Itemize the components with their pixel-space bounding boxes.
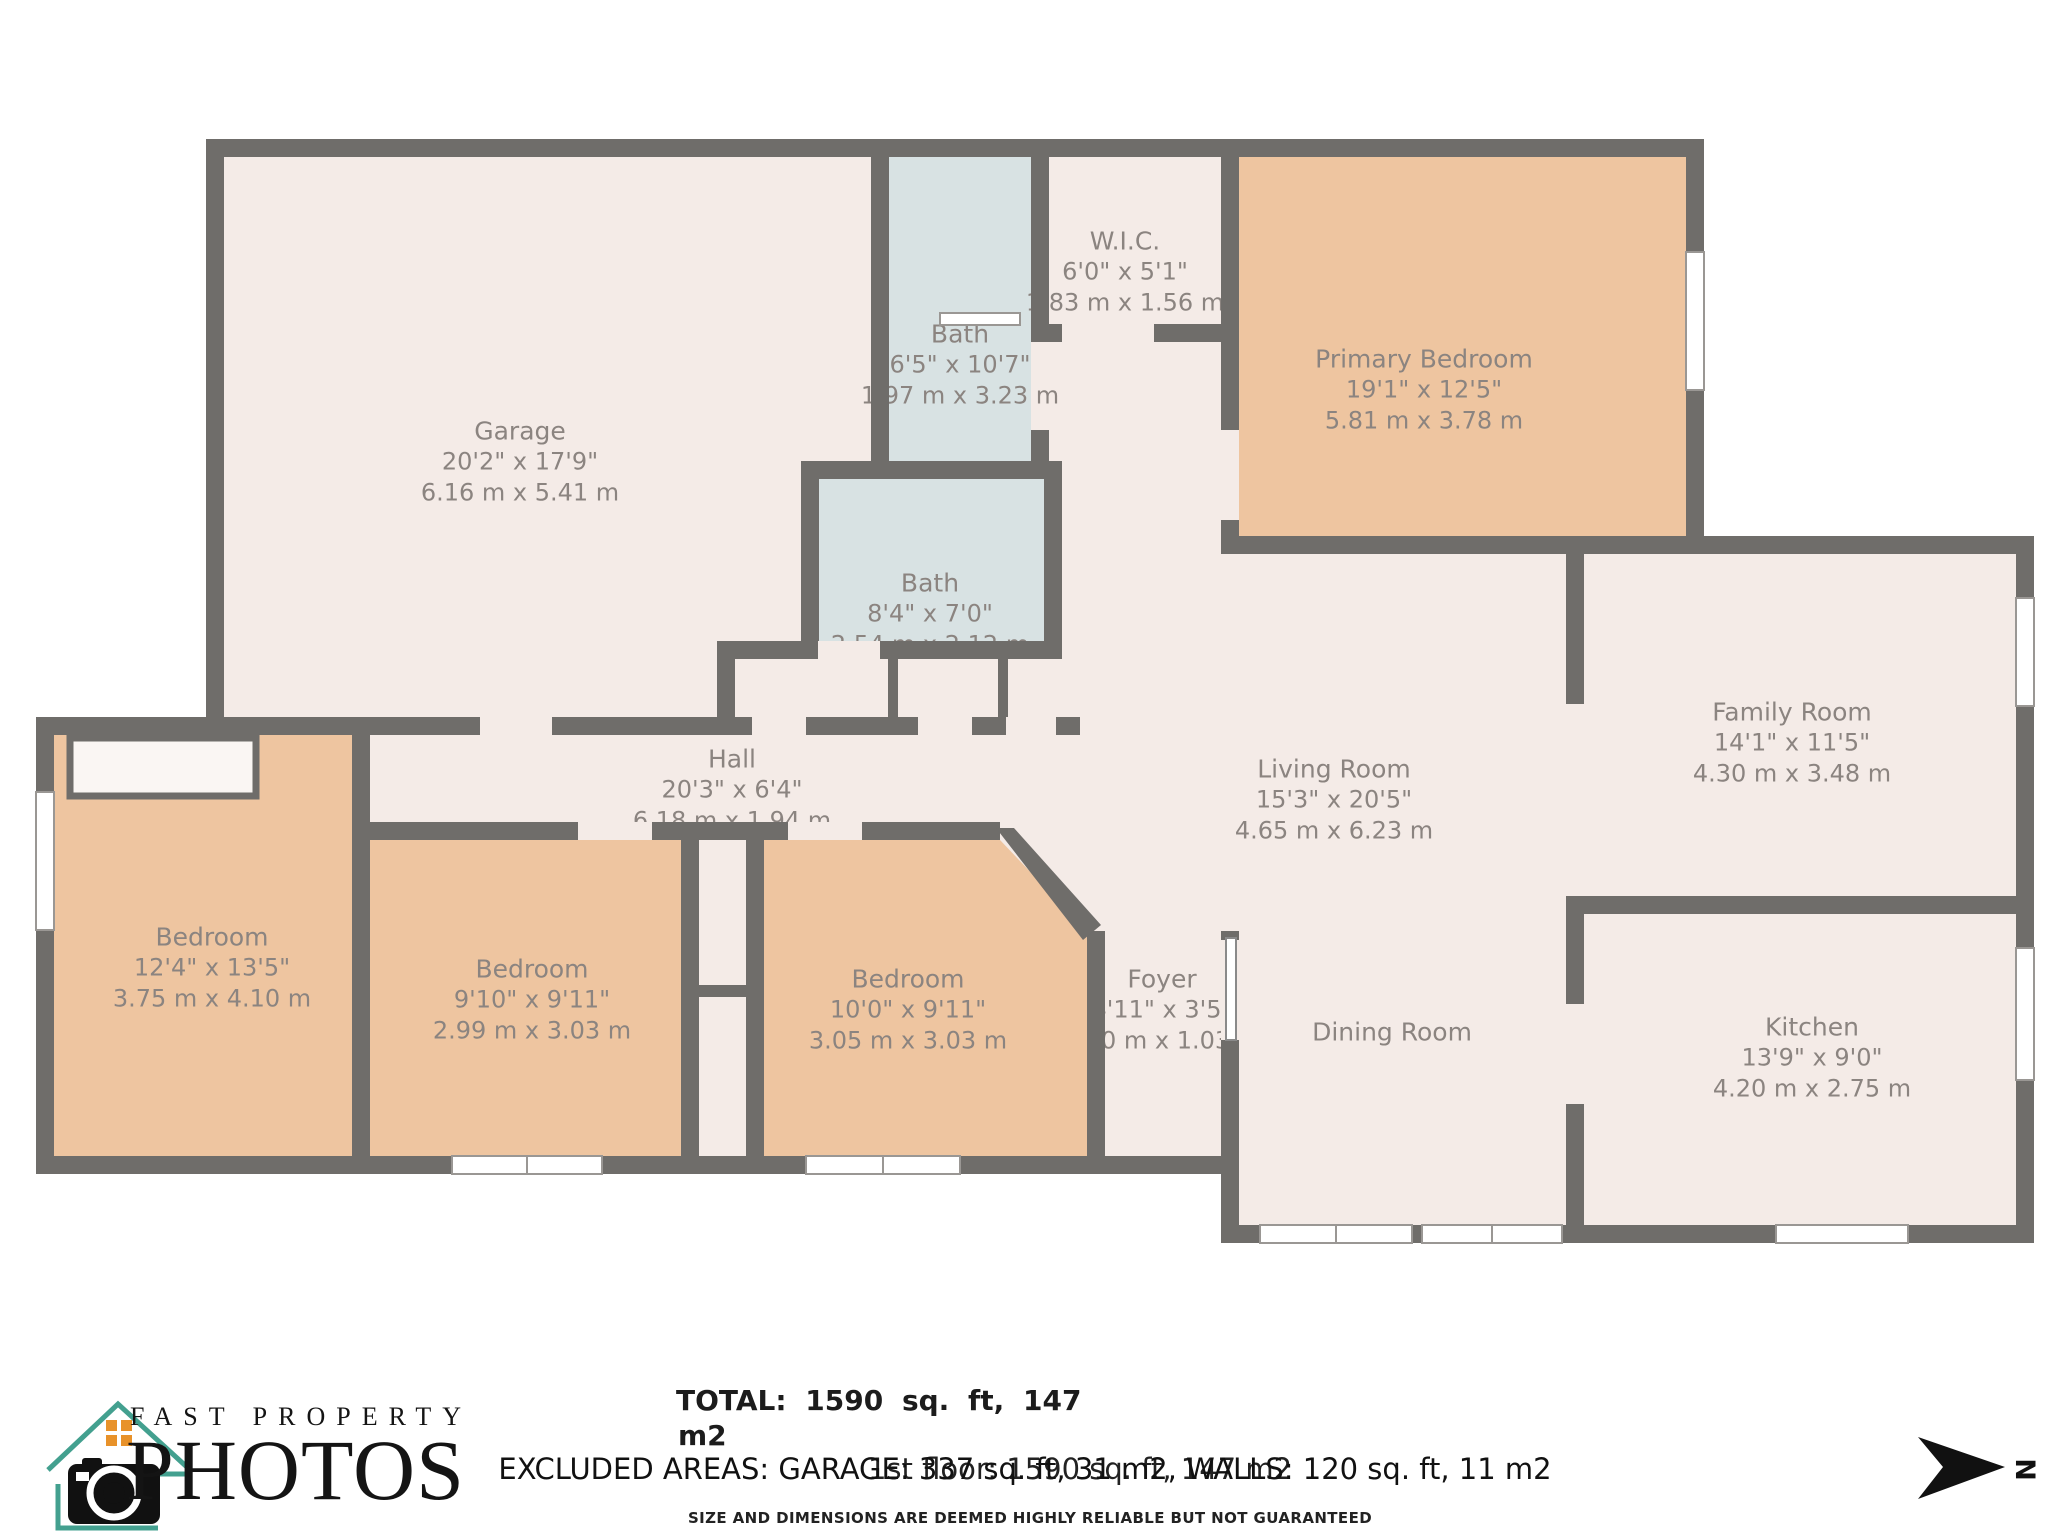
room-label-dining-room: Dining Room bbox=[1312, 1017, 1472, 1048]
room-name: Bedroom bbox=[433, 954, 631, 985]
room-imperial: 15'3" x 20'5" bbox=[1235, 785, 1433, 816]
room-name: Bath bbox=[861, 319, 1059, 350]
foyer-label-clip: Foyer 4'11" x 3'5" 1.50 m x 1.03 m bbox=[1087, 952, 1239, 1070]
room-label-wic: W.I.C. 6'0" x 5'1" 1.83 m x 1.56 m bbox=[1026, 226, 1224, 319]
room-label-kitchen: Kitchen 13'9" x 9'0" 4.20 m x 2.75 m bbox=[1713, 1012, 1911, 1105]
room-name: Bedroom bbox=[113, 922, 311, 953]
room-label-hall: Hall 20'3" x 6'4" 6.18 m x 1.94 m bbox=[633, 744, 831, 837]
room-metric: 1.83 m x 1.56 m bbox=[1026, 288, 1224, 319]
room-imperial: 6'5" x 10'7" bbox=[861, 350, 1059, 381]
room-metric: 3.05 m x 3.03 m bbox=[809, 1026, 1007, 1057]
room-name: Primary Bedroom bbox=[1315, 344, 1533, 375]
room-label-garage: Garage 20'2" x 17'9" 6.16 m x 5.41 m bbox=[421, 416, 619, 509]
room-label-bath-upper: Bath 6'5" x 10'7" 1.97 m x 3.23 m bbox=[861, 319, 1059, 412]
room-name: Bath bbox=[831, 568, 1029, 599]
room-imperial: 13'9" x 9'0" bbox=[1713, 1043, 1911, 1074]
room-name: Family Room bbox=[1693, 697, 1891, 728]
room-label-bedroom-2: Bedroom 9'10" x 9'11" 2.99 m x 3.03 m bbox=[433, 954, 631, 1047]
room-metric: 6.18 m x 1.94 m bbox=[633, 806, 831, 837]
room-metric: 1.50 m x 1.03 m bbox=[1087, 1026, 1239, 1057]
room-name: Dining Room bbox=[1312, 1017, 1472, 1048]
compass-north-label: N bbox=[2009, 1458, 2040, 1481]
room-name: Foyer bbox=[1087, 964, 1239, 995]
room-metric: 4.30 m x 3.48 m bbox=[1693, 759, 1891, 790]
room-imperial: 10'0" x 9'11" bbox=[809, 995, 1007, 1026]
room-label-bath-lower: Bath 8'4" x 7'0" 2.54 m x 2.12 m bbox=[831, 568, 1029, 661]
room-imperial: 20'2" x 17'9" bbox=[421, 447, 619, 478]
room-metric: 2.54 m x 2.12 m bbox=[831, 630, 1029, 661]
logo-text-bottom: PHOTOS bbox=[126, 1420, 465, 1520]
room-imperial: 20'3" x 6'4" bbox=[633, 775, 831, 806]
room-label-family-room: Family Room 14'1" x 11'5" 4.30 m x 3.48 … bbox=[1693, 697, 1891, 790]
room-metric: 1.97 m x 3.23 m bbox=[861, 381, 1059, 412]
room-imperial: 6'0" x 5'1" bbox=[1026, 257, 1224, 288]
room-metric: 4.65 m x 6.23 m bbox=[1235, 816, 1433, 847]
total-area-line1: TOTAL: 1590 sq. ft, 147 bbox=[676, 1384, 1081, 1417]
total-area-line2: m2 bbox=[678, 1419, 727, 1452]
room-metric: 3.75 m x 4.10 m bbox=[113, 984, 311, 1015]
room-imperial: 19'1" x 12'5" bbox=[1315, 375, 1533, 406]
room-name: Hall bbox=[633, 744, 831, 775]
room-name: Garage bbox=[421, 416, 619, 447]
room-label-foyer: Foyer 4'11" x 3'5" 1.50 m x 1.03 m bbox=[1087, 964, 1239, 1057]
room-label-living-room: Living Room 15'3" x 20'5" 4.65 m x 6.23 … bbox=[1235, 754, 1433, 847]
room-imperial: 8'4" x 7'0" bbox=[831, 599, 1029, 630]
room-imperial: 14'1" x 11'5" bbox=[1693, 728, 1891, 759]
room-name: Living Room bbox=[1235, 754, 1433, 785]
room-imperial: 12'4" x 13'5" bbox=[113, 953, 311, 984]
room-labels: Garage 20'2" x 17'9" 6.16 m x 5.41 m Bat… bbox=[0, 0, 2048, 1536]
compass: N bbox=[1905, 1428, 2045, 1518]
disclaimer-text: SIZE AND DIMENSIONS ARE DEEMED HIGHLY RE… bbox=[688, 1509, 1372, 1527]
excluded-areas-line: EXCLUDED AREAS: GARAGE: 337 sq. ft, 31 m… bbox=[498, 1452, 1551, 1486]
floorplan-page: Garage 20'2" x 17'9" 6.16 m x 5.41 m Bat… bbox=[0, 0, 2048, 1536]
room-metric: 4.20 m x 2.75 m bbox=[1713, 1074, 1911, 1105]
room-metric: 2.99 m x 3.03 m bbox=[433, 1016, 631, 1047]
room-label-bedroom-1: Bedroom 12'4" x 13'5" 3.75 m x 4.10 m bbox=[113, 922, 311, 1015]
room-metric: 5.81 m x 3.78 m bbox=[1315, 406, 1533, 437]
room-name: Bedroom bbox=[809, 964, 1007, 995]
room-imperial: 9'10" x 9'11" bbox=[433, 985, 631, 1016]
room-name: W.I.C. bbox=[1026, 226, 1224, 257]
room-metric: 6.16 m x 5.41 m bbox=[421, 478, 619, 509]
room-label-primary-bedroom: Primary Bedroom 19'1" x 12'5" 5.81 m x 3… bbox=[1315, 344, 1533, 437]
room-imperial: 4'11" x 3'5" bbox=[1087, 995, 1239, 1026]
room-name: Kitchen bbox=[1713, 1012, 1911, 1043]
room-label-bedroom-3: Bedroom 10'0" x 9'11" 3.05 m x 3.03 m bbox=[809, 964, 1007, 1057]
